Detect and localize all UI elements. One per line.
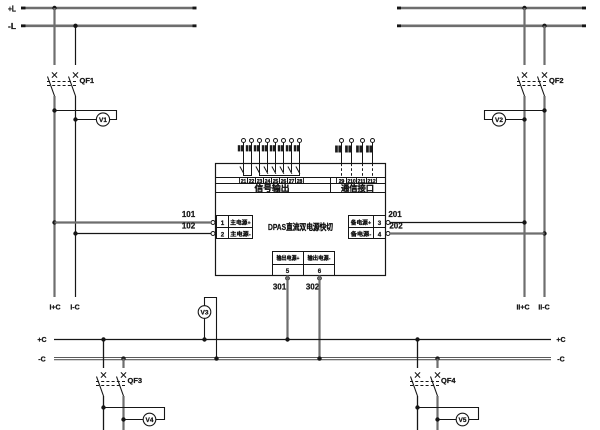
svg-text:26: 26 <box>281 179 287 185</box>
svg-text:V1: V1 <box>99 117 107 124</box>
svg-text:202: 202 <box>389 221 403 230</box>
svg-text:-L: -L <box>8 22 16 31</box>
svg-text:27: 27 <box>289 179 295 185</box>
svg-text:主电源-: 主电源- <box>230 230 251 238</box>
svg-text:备电源+: 备电源+ <box>350 218 372 226</box>
svg-text:6: 6 <box>318 268 322 275</box>
svg-text:201: 201 <box>388 210 402 219</box>
svg-text:V2: V2 <box>495 117 503 124</box>
svg-text:+C: +C <box>556 337 565 344</box>
svg-text:II-C: II-C <box>538 305 549 312</box>
svg-text:-C: -C <box>557 356 564 363</box>
svg-text:备电源-: 备电源- <box>350 230 372 238</box>
svg-text:QF3: QF3 <box>128 376 143 385</box>
svg-text:3: 3 <box>378 220 382 227</box>
svg-text:22: 22 <box>249 179 255 185</box>
svg-text:4: 4 <box>378 232 382 239</box>
svg-text:QF1: QF1 <box>80 76 95 85</box>
svg-text:DPAS直流双电源快切: DPAS直流双电源快切 <box>268 222 333 232</box>
svg-text:212: 212 <box>367 179 376 185</box>
svg-text:23: 23 <box>257 179 263 185</box>
svg-text:2: 2 <box>221 232 225 239</box>
svg-text:101: 101 <box>182 210 196 219</box>
svg-text:210: 210 <box>347 179 356 185</box>
svg-text:24: 24 <box>265 179 271 185</box>
svg-text:301: 301 <box>273 282 287 291</box>
svg-text:V5: V5 <box>459 417 467 424</box>
svg-text:V3: V3 <box>201 309 209 316</box>
svg-text:II+C: II+C <box>516 305 529 312</box>
svg-text:29: 29 <box>339 179 345 185</box>
svg-text:QF2: QF2 <box>549 76 564 85</box>
svg-text:主电源+: 主电源+ <box>230 218 251 226</box>
svg-text:+C: +C <box>37 337 46 344</box>
svg-text:102: 102 <box>182 221 196 230</box>
svg-text:输出电源-: 输出电源- <box>308 254 331 262</box>
svg-text:211: 211 <box>357 179 365 185</box>
svg-text:输出电源+: 输出电源+ <box>277 254 301 262</box>
svg-text:21: 21 <box>241 179 247 185</box>
svg-text:I-C: I-C <box>70 305 79 312</box>
svg-text:28: 28 <box>297 179 303 185</box>
svg-text:25: 25 <box>273 179 279 185</box>
svg-text:I+C: I+C <box>49 305 60 312</box>
svg-text:V4: V4 <box>146 417 154 424</box>
svg-text:302: 302 <box>306 282 320 291</box>
svg-text:5: 5 <box>286 268 290 275</box>
svg-text:1: 1 <box>221 220 225 227</box>
svg-text:-C: -C <box>38 356 45 363</box>
svg-text:+L: +L <box>8 4 16 13</box>
svg-text:QF4: QF4 <box>441 376 456 385</box>
